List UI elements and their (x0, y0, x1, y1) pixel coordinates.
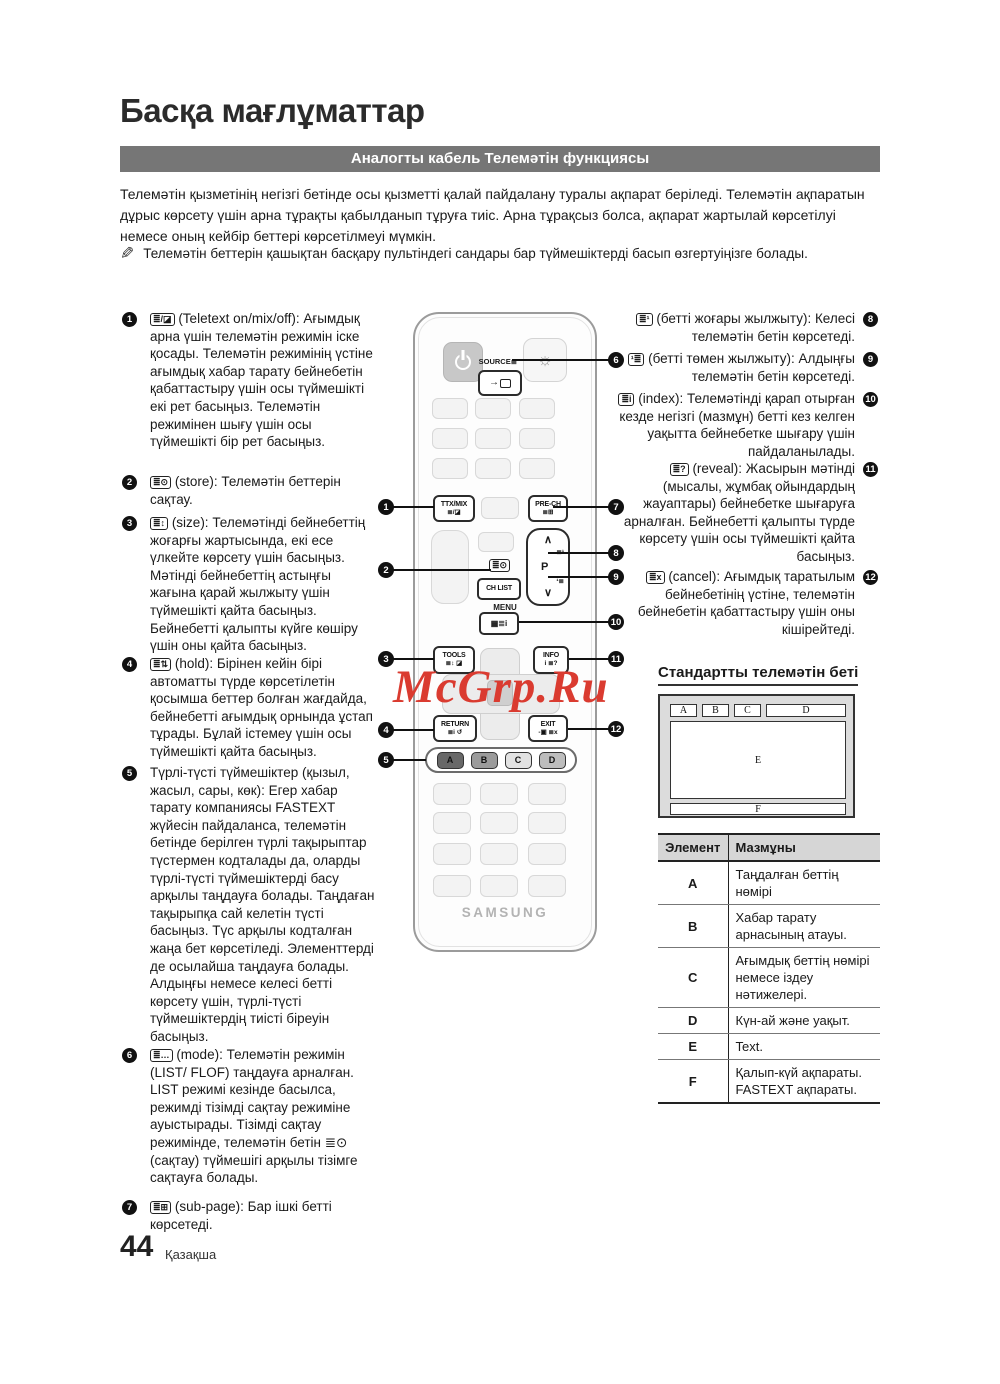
pencil-note-icon: ✎ (120, 245, 134, 263)
blank-button (528, 783, 566, 805)
color-buttons-row: A B C D (425, 747, 577, 773)
p-label: P (541, 561, 548, 574)
page-language: Қазақша (165, 1247, 216, 1262)
item-number-badge: 10 (863, 392, 878, 407)
table-row: E Text. (658, 1034, 880, 1060)
list-item-11: ≣? (reveal): Жасырын мәтінді (мысалы, жұ… (616, 460, 878, 566)
callout-badge-10: 10 (608, 614, 624, 630)
callout-line (553, 506, 610, 508)
item-number-badge: 12 (863, 570, 878, 585)
number-button (432, 398, 468, 419)
blue-d-button: D (539, 752, 566, 769)
index-icon: ≣i (618, 393, 634, 406)
callout-badge-3: 3 (378, 651, 394, 667)
callout-badge-6: 6 (608, 352, 624, 368)
item-text: ≣/◪ (Teletext on/mix/off): Ағымдық арна … (150, 310, 376, 451)
diagram-label-c: C (734, 704, 761, 717)
note-row: ✎ Телемәтін беттерін қашықтан басқару пу… (120, 245, 890, 263)
item-body: (sub-page): Бар ішкі бетті көрсетеді. (150, 1199, 332, 1232)
item-number-badge: 6 (122, 1048, 137, 1063)
item-text: ≣x (cancel): Ағымдық таратылым бейнебеті… (616, 568, 855, 638)
item-body: (cancel): Ағымдық таратылым бейнебетінің… (638, 569, 855, 637)
list-item-2: 2 ≣⊙ (store): Телемәтін беттерін сақтау. (122, 473, 376, 508)
blank-button (480, 875, 518, 897)
cell-element: B (658, 905, 728, 948)
table-row: D Күн-ай және уақыт. (658, 1008, 880, 1034)
standard-page-title: Стандартты телемәтін беті (658, 664, 858, 686)
number-button (432, 428, 468, 449)
item-body: (hold): Бірінен кейін бірі автоматты түр… (150, 656, 373, 759)
item-text: ≣… (mode): Телемәтін режимін (LIST/ FLOF… (150, 1046, 376, 1187)
teletext-mix-icon: ≣/◪ (150, 313, 175, 326)
blank-button (528, 843, 566, 865)
item-text: ¹≣ (бетті төмен жылжыту): Алдыңғы телемә… (616, 350, 855, 385)
blank-button (480, 812, 518, 834)
cell-element: E (658, 1034, 728, 1060)
diagram-label-d: D (766, 704, 846, 717)
page-down-icon: ¹≣ (628, 353, 645, 366)
ttx-mix-icon: ≣/◪ (447, 509, 460, 516)
item-number-badge: 5 (122, 766, 137, 781)
pre-ch-button: PRE-CH ≣⊞ (528, 495, 568, 522)
item-text: ≣i (index): Телемәтінді қарап отырған ке… (616, 390, 855, 460)
page-title: Басқа мағлұматтар (120, 92, 425, 130)
cell-content: Қалып-күй ақпараты. FASTEXT ақпараты. (728, 1060, 880, 1104)
blank-button (528, 812, 566, 834)
ttx-mix-label: TTX/MIX (441, 501, 467, 509)
source-label: SOURCE≣ (455, 357, 517, 366)
blank-button (433, 843, 471, 865)
list-item-1: 1 ≣/◪ (Teletext on/mix/off): Ағымдық арн… (122, 310, 376, 451)
item-number-badge: 11 (863, 462, 878, 477)
note-text: Телемәтін беттерін қашықтан басқару пуль… (143, 245, 808, 263)
list-item-6: 6 ≣… (mode): Телемәтін режимін (LIST/ FL… (122, 1046, 376, 1187)
callout-line (512, 359, 610, 361)
cell-content: Таңдалған беттің нөмірі (728, 861, 880, 905)
item-body: Түрлі-түсті түймешіктер (қызыл, жасыл, с… (150, 765, 374, 1044)
item-number-badge: 4 (122, 657, 137, 672)
item-text: Түрлі-түсті түймешіктер (қызыл, жасыл, с… (150, 764, 376, 1046)
list-item-9: ¹≣ (бетті төмен жылжыту): Алдыңғы телемә… (616, 350, 878, 385)
callout-line (392, 506, 434, 508)
diagram-label-a: A (670, 704, 697, 717)
reveal-icon: ≣? (670, 463, 689, 476)
callout-line (392, 729, 434, 731)
item-body: (Teletext on/mix/off): Ағымдық арна үшін… (150, 311, 373, 449)
callout-badge-9: 9 (608, 569, 624, 585)
list-item-12: ≣x (cancel): Ағымдық таратылым бейнебеті… (616, 568, 878, 638)
column-header-content: Мазмұны (728, 834, 880, 861)
diagram-label-b: B (702, 704, 729, 717)
number-button (475, 398, 511, 419)
exit-label: EXIT (541, 721, 556, 729)
item-text: ≣⇅ (hold): Бірінен кейін бірі автоматты … (150, 655, 376, 761)
subpage-icon: ≣⊞ (150, 1201, 171, 1214)
item-text: ≣¹ (бетті жоғары жылжыту): Келесі телемә… (616, 310, 855, 345)
item-body: (reveal): Жасырын мәтінді (мысалы, жұмба… (624, 461, 855, 564)
item-number-badge: 1 (122, 312, 137, 327)
number-button (519, 428, 555, 449)
item-body: (store): Телемәтін беттерін сақтау. (150, 474, 341, 507)
item-text: ≣↕ (size): Телемәтінді бейнебеттің жоғар… (150, 514, 376, 655)
number-button (519, 398, 555, 419)
table-row: A Таңдалған беттің нөмірі (658, 861, 880, 905)
hold-icon: ≣⇅ (150, 658, 171, 671)
return-button: RETURN ≣i ↺ (433, 715, 477, 742)
item-number-badge: 7 (122, 1200, 137, 1215)
item-body: (mode): Телемәтін режимін (LIST/ FLOF) т… (150, 1047, 358, 1185)
callout-badge-2: 2 (378, 562, 394, 578)
table-row: B Хабар тарату арнасының атауы. (658, 905, 880, 948)
subpage-icon: ≣⊞ (543, 509, 554, 516)
callout-badge-8: 8 (608, 545, 624, 561)
cell-content: Ағымдық беттің нөмірі немесе іздеу нәтиж… (728, 948, 880, 1008)
item-number-badge: 9 (863, 352, 878, 367)
return-icon: ≣i ↺ (448, 729, 463, 736)
column-header-element: Элемент (658, 834, 728, 861)
cell-element: F (658, 1060, 728, 1104)
element-table: Элемент Мазмұны A Таңдалған беттің нөмір… (658, 833, 880, 1104)
item-body: (index): Телемәтінді қарап отырған кезде… (619, 391, 855, 459)
table-header-row: Элемент Мазмұны (658, 834, 880, 861)
cell-element: D (658, 1008, 728, 1034)
source-button: → (478, 370, 522, 396)
item-number-badge: 3 (122, 516, 137, 531)
blank-button (481, 497, 519, 519)
callout-line (548, 552, 610, 554)
page-up-icon: ≣¹ (636, 313, 653, 326)
exit-button: EXIT -▣ ≣x (528, 715, 568, 742)
item-body: (бетті жоғары жылжыту): Келесі телемәтін… (656, 311, 855, 344)
menu-label: MENU (413, 603, 597, 612)
watermark: McGrp.Ru (393, 660, 609, 714)
size-icon: ≣↕ (150, 517, 168, 530)
mode-icon: ≣… (150, 1049, 173, 1062)
blank-button (480, 783, 518, 805)
blank-button (433, 783, 471, 805)
blank-button (478, 532, 514, 552)
page-down-icon: ¹≣ (556, 578, 564, 585)
callout-line (392, 759, 426, 761)
number-button (432, 458, 468, 479)
number-button (519, 458, 555, 479)
list-item-10: ≣i (index): Телемәтінді қарап отырған ке… (616, 390, 878, 460)
list-item-5: 5 Түрлі-түсті түймешіктер (қызыл, жасыл,… (122, 764, 376, 1046)
cell-element: C (658, 948, 728, 1008)
item-number-badge: 8 (863, 312, 878, 327)
chevron-down-icon: ∨ (528, 587, 568, 600)
page-number: 44 (120, 1230, 153, 1264)
callout-badge-5: 5 (378, 752, 394, 768)
cell-content: Text. (728, 1034, 880, 1060)
item-text: ≣⊙ (store): Телемәтін беттерін сақтау. (150, 473, 376, 508)
item-body: (size): Телемәтінді бейнебеттің жоғарғы … (150, 515, 365, 653)
item-number-badge: 2 (122, 475, 137, 490)
blank-button (480, 843, 518, 865)
red-a-button: A (437, 752, 464, 769)
item-text: ≣⊞ (sub-page): Бар ішкі бетті көрсетеді. (150, 1198, 376, 1233)
callout-line (568, 728, 610, 730)
ttx-mix-button: TTX/MIX ≣/◪ (433, 495, 475, 522)
callout-line (519, 621, 610, 623)
blank-button (528, 875, 566, 897)
cancel-icon: ≣x (646, 571, 665, 584)
item-text: ≣? (reveal): Жасырын мәтінді (мысалы, жұ… (616, 460, 855, 566)
channel-rocker: ∧ ≣¹ P ¹≣ ∨ (526, 528, 570, 606)
ch-list-button: CH LIST (477, 578, 521, 600)
cell-content: Хабар тарату арнасының атауы. (728, 905, 880, 948)
table-row: F Қалып-күй ақпараты. FASTEXT ақпараты. (658, 1060, 880, 1104)
source-arrow-icon: → (489, 378, 499, 388)
yellow-c-button: C (505, 752, 532, 769)
chevron-up-icon: ∧ (528, 534, 568, 547)
callout-line (392, 569, 491, 571)
cell-content: Күн-ай және уақыт. (728, 1008, 880, 1034)
callout-badge-7: 7 (608, 499, 624, 515)
list-item-8: ≣¹ (бетті жоғары жылжыту): Келесі телемә… (616, 310, 878, 345)
list-item-7: 7 ≣⊞ (sub-page): Бар ішкі бетті көрсетед… (122, 1198, 376, 1233)
list-item-4: 4 ≣⇅ (hold): Бірінен кейін бірі автоматт… (122, 655, 376, 761)
menu-grid-icon: ▦≣i (491, 619, 507, 628)
store-icon: ≣⊙ (150, 476, 171, 489)
callout-badge-12: 12 (608, 721, 624, 737)
list-item-3: 3 ≣↕ (size): Телемәтінді бейнебеттің жоғ… (122, 514, 376, 655)
store-icon: ≣⊙ (489, 559, 510, 572)
return-label: RETURN (441, 721, 469, 729)
blank-button (433, 812, 471, 834)
diagram-label-f: F (670, 803, 846, 815)
exit-icon: -▣ ≣x (538, 729, 557, 736)
callout-badge-4: 4 (378, 722, 394, 738)
teletext-page-diagram: A B C D E F (658, 694, 855, 818)
blank-button (433, 875, 471, 897)
samsung-logo: SAMSUNG (413, 905, 597, 920)
item-body: (бетті төмен жылжыту): Алдыңғы телемәтін… (648, 351, 855, 384)
callout-badge-1: 1 (378, 499, 394, 515)
green-b-button: B (471, 752, 498, 769)
callout-line (548, 576, 610, 578)
volume-rocker (431, 530, 469, 604)
diagram-label-e: E (670, 721, 846, 799)
number-button (475, 458, 511, 479)
source-box-icon (500, 379, 511, 388)
callout-badge-11: 11 (608, 651, 624, 667)
section-header-bar: Аналогты кабель Телемәтін функциясы (120, 146, 880, 172)
cell-element: A (658, 861, 728, 905)
intro-paragraph: Телемәтін қызметінің негізгі бетінде осы… (120, 184, 882, 247)
remote-control-illustration: ☼ SOURCE≣ → TTX/MIX ≣/◪ PRE-CH ≣⊞ ≣⊙ CH … (413, 312, 597, 952)
menu-button: ▦≣i (479, 612, 519, 635)
number-button (475, 428, 511, 449)
table-row: C Ағымдық беттің нөмірі немесе іздеу нәт… (658, 948, 880, 1008)
ch-list-label: CH LIST (486, 585, 512, 593)
